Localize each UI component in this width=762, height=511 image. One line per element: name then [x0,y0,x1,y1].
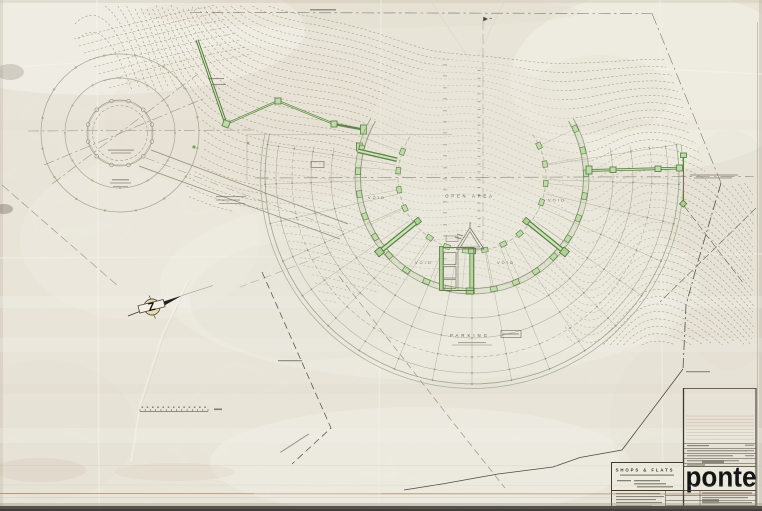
svg-text:VOID: VOID [497,261,515,265]
svg-text:VOID: VOID [368,196,386,200]
svg-text:SHOPS & FLATS: SHOPS & FLATS [616,468,675,473]
svg-text:OPEN AREA: OPEN AREA [445,194,494,199]
svg-text:VOID: VOID [548,199,566,203]
svg-text:VOID: VOID [415,261,433,265]
svg-text:ponte: ponte [686,462,757,494]
svg-text:PARKING: PARKING [450,333,490,338]
